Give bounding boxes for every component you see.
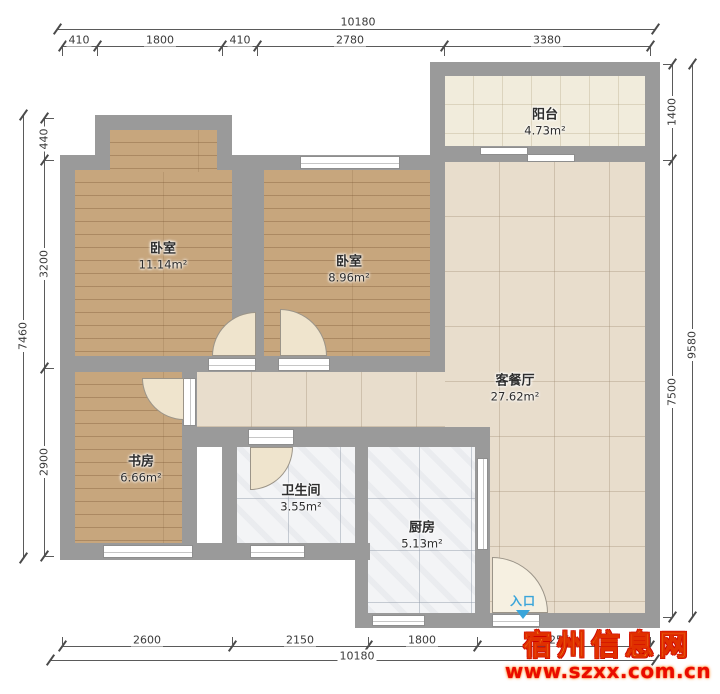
dim-label: 3380: [531, 34, 563, 47]
dim-label: 2900: [38, 446, 51, 478]
dim-label: 7460: [17, 320, 30, 352]
room-name: 卧室: [139, 242, 188, 258]
dim-tick: [688, 611, 697, 623]
dim-stub: [650, 47, 651, 56]
dim-label: 1800: [144, 34, 176, 47]
dim-label: 2780: [334, 34, 366, 47]
entrance-marker: 入口: [510, 592, 536, 619]
dim-stub: [222, 47, 223, 56]
watermark-site-name: 宿州信息网: [496, 630, 720, 662]
entrance-arrow-icon: [516, 610, 530, 619]
wall-bathroom-left: [222, 427, 237, 560]
room-label-study: 书房 6.66m²: [120, 455, 161, 486]
room-area: 3.55m²: [280, 500, 321, 514]
room-label-kitchen: 厨房 5.13m²: [401, 521, 442, 552]
room-area: 11.14m²: [139, 258, 188, 272]
dim-stub: [663, 617, 672, 618]
room-area: 8.96m²: [328, 271, 369, 285]
wall-right: [645, 62, 660, 628]
dim-stub: [45, 160, 54, 161]
room-name: 厨房: [401, 521, 442, 537]
dim-label: 410: [228, 34, 253, 47]
study-door-sill: [183, 378, 196, 426]
dim-label: 10180: [339, 16, 378, 29]
dim-stub: [663, 64, 672, 65]
room-label-bedroom-2: 卧室 8.96m²: [328, 255, 369, 286]
room-name: 书房: [120, 455, 161, 471]
dim-stub: [97, 47, 98, 56]
balcony-slider-panel-2: [527, 154, 575, 162]
dim-stub: [257, 47, 258, 56]
wall-bump-top: [95, 115, 232, 130]
wall-balcony-top: [430, 62, 660, 76]
room-label-living-dining: 客餐厅 27.62m²: [491, 374, 540, 405]
wall-bath-kitchen-top: [197, 427, 490, 447]
dim-stub: [45, 556, 54, 557]
balcony-slider-panel-1: [480, 147, 528, 155]
room-label-balcony: 阳台 4.73m²: [524, 108, 565, 139]
dim-label: 3200: [38, 248, 51, 280]
room-label-bathroom: 卫生间 3.55m²: [280, 484, 321, 515]
dim-line-top-outer: [57, 29, 655, 30]
bedroom-1-bump-floor: [110, 130, 217, 172]
dim-stub: [45, 368, 54, 369]
bathroom-window: [250, 545, 305, 558]
dim-stub: [62, 47, 63, 56]
dim-label: 1800: [406, 634, 438, 647]
floor-plan-canvas: 卧室 11.14m² 卧室 8.96m² 阳台 4.73m² 客餐厅 27.62…: [0, 0, 720, 694]
dim-label: 2600: [131, 634, 163, 647]
room-name: 卫生间: [280, 484, 321, 500]
dim-line-left-inner: [44, 118, 45, 556]
kitchen-window: [372, 615, 425, 626]
room-name: 卧室: [328, 255, 369, 271]
study-window: [103, 545, 193, 558]
kitchen-side-panel: [477, 458, 488, 550]
room-area: 6.66m²: [120, 471, 161, 485]
room-area: 5.13m²: [401, 537, 442, 551]
dim-stub: [45, 118, 54, 119]
wall-kitchen-left: [355, 427, 368, 628]
entrance-label: 入口: [510, 592, 536, 609]
room-label-bedroom-1: 卧室 11.14m²: [139, 242, 188, 273]
dim-line-right-inner: [672, 64, 673, 617]
dim-stub: [368, 637, 369, 646]
dim-label: 9580: [686, 329, 699, 361]
dim-stub: [663, 160, 672, 161]
dim-label: 2150: [284, 634, 316, 647]
watermark: 宿州信息网 www.szxx.com.cn: [496, 630, 720, 683]
wall-balcony-left: [430, 62, 445, 372]
room-name: 客餐厅: [491, 374, 540, 390]
watermark-site-url: www.szxx.com.cn: [496, 659, 720, 683]
bedroom-2-door-sill: [278, 358, 330, 371]
dim-tick: [19, 552, 28, 564]
bedroom-1-door-sill: [208, 358, 256, 371]
room-name: 阳台: [524, 108, 565, 124]
dim-label: 1400: [666, 96, 679, 128]
dim-stub: [477, 637, 478, 646]
dim-stub: [444, 47, 445, 56]
bedroom-2-window: [300, 156, 400, 169]
hallway-floor: [197, 372, 445, 428]
room-area: 4.73m²: [524, 124, 565, 138]
dim-stub: [62, 637, 63, 646]
bathroom-door-sill: [248, 429, 294, 445]
dim-label: 440: [38, 127, 51, 152]
room-area: 27.62m²: [491, 390, 540, 404]
dim-stub: [232, 637, 233, 646]
dim-label: 10180: [338, 650, 377, 663]
dim-label: 7500: [666, 376, 679, 408]
dim-label: 410: [67, 34, 92, 47]
